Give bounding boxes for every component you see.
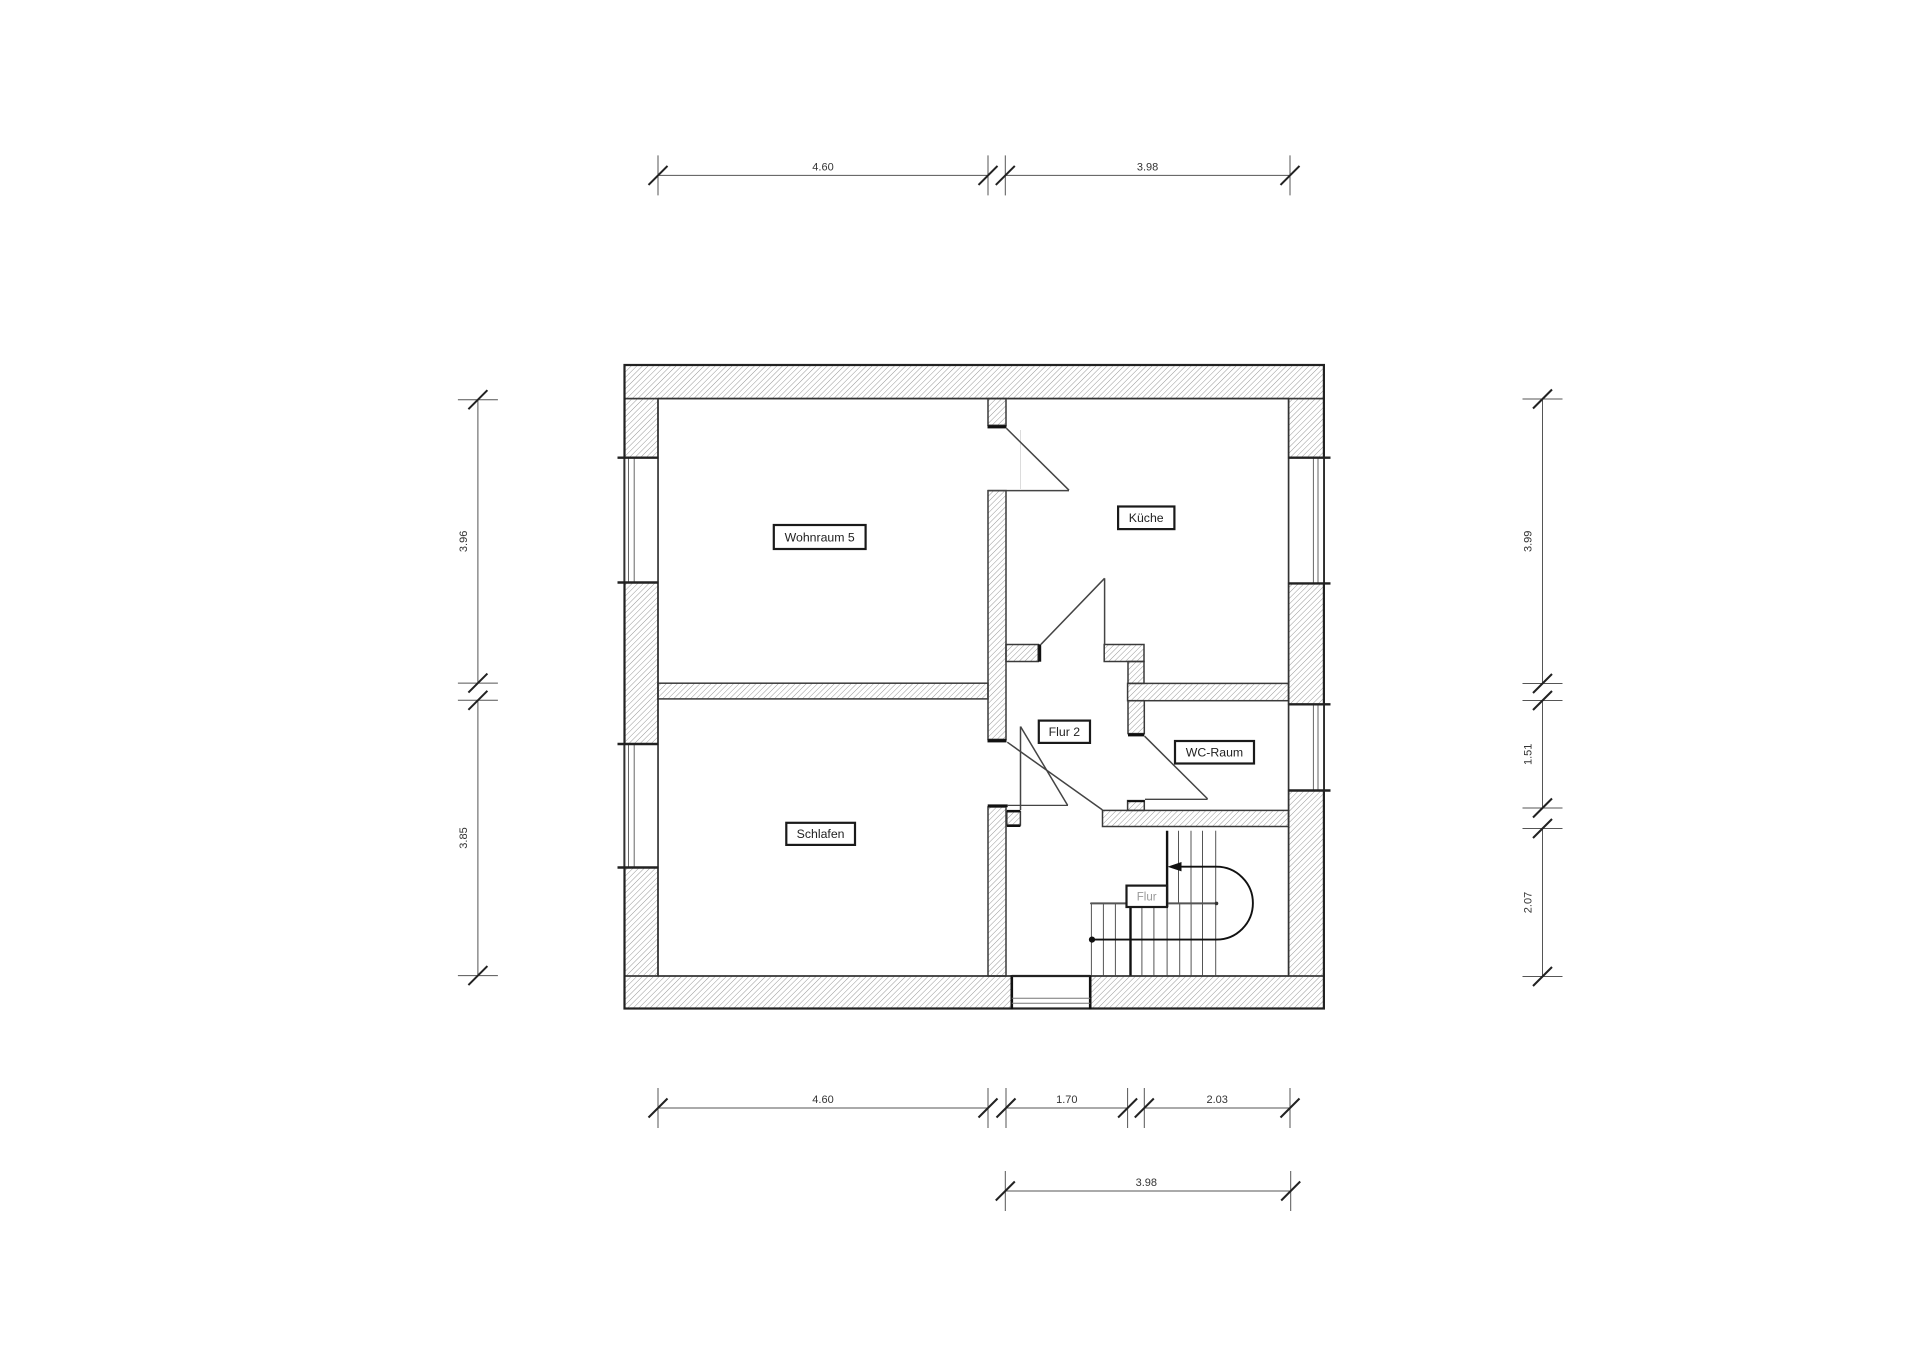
svg-text:1.70: 1.70	[1056, 1094, 1077, 1106]
svg-text:3.99: 3.99	[1522, 531, 1534, 552]
svg-text:WC-Raum: WC-Raum	[1186, 746, 1243, 760]
svg-text:4.60: 4.60	[812, 1094, 833, 1106]
svg-text:2.07: 2.07	[1522, 892, 1534, 913]
svg-text:3.98: 3.98	[1137, 162, 1158, 174]
svg-text:Küche: Küche	[1129, 511, 1164, 525]
svg-text:4.60: 4.60	[812, 162, 833, 174]
svg-text:3.96: 3.96	[458, 531, 470, 552]
svg-text:3.85: 3.85	[458, 827, 470, 848]
svg-text:Wohnraum 5: Wohnraum 5	[785, 530, 855, 544]
svg-text:3.98: 3.98	[1136, 1177, 1157, 1189]
svg-text:1.51: 1.51	[1522, 744, 1534, 765]
svg-text:Flur: Flur	[1137, 892, 1157, 904]
svg-text:2.03: 2.03	[1206, 1094, 1227, 1106]
svg-text:Schlafen: Schlafen	[797, 827, 845, 841]
svg-text:Flur 2: Flur 2	[1049, 725, 1081, 739]
